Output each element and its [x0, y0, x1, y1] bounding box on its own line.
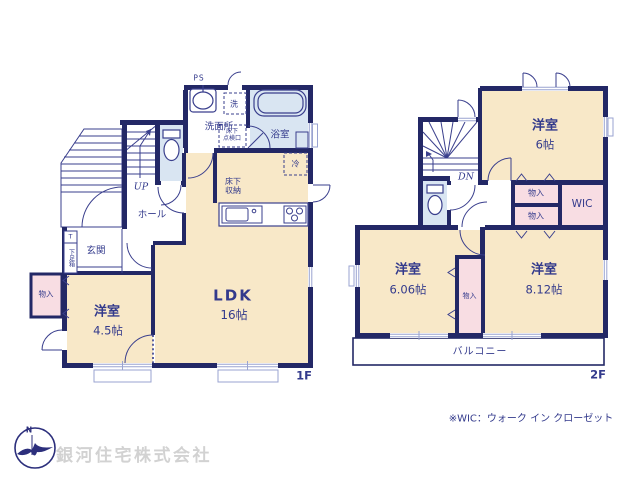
bird-icon	[17, 443, 53, 456]
wic-label: WIC	[572, 198, 593, 210]
floor1-label: 1F	[296, 369, 312, 382]
bedroom45-label: 洋室	[94, 306, 120, 321]
toilet-tank-2f	[427, 185, 443, 193]
shoe-box-label: 下足箱	[68, 249, 74, 267]
hall-label: ホール	[138, 211, 167, 222]
shoe-t-label: T	[69, 233, 73, 240]
up-label: UP	[134, 183, 148, 194]
closet-upper-label: 物入	[528, 188, 544, 197]
company-name: 銀河住宅株式会社	[56, 447, 212, 467]
toilet-tank-1f	[163, 130, 180, 138]
toilet-bowl-1f	[164, 140, 179, 161]
underfloor-hatch-label: 床下 点検口	[223, 129, 241, 143]
toilet-bowl-2f	[428, 196, 442, 215]
closet-1f-label: 物入	[39, 291, 54, 300]
kitchen-back-door	[313, 185, 330, 202]
logo-n-label: N	[26, 427, 32, 436]
bedroom606-label: 洋室	[395, 264, 421, 279]
wic-note: ※WIC：ウォーク イン クローゼット	[449, 413, 614, 425]
bedroom45-size: 4.5帖	[93, 324, 123, 337]
toilet-2f-door	[450, 185, 475, 210]
entrance-label: 玄関	[86, 247, 105, 258]
fridge-label: 冷	[292, 159, 300, 168]
toilet-1f-door	[161, 185, 181, 205]
floor2-label: 2F	[590, 368, 606, 381]
hall-genkan-door	[127, 243, 152, 268]
bedroom6-size: 6帖	[536, 138, 555, 151]
bedroom606-size: 6.06帖	[389, 283, 426, 296]
bedroom6-label: 洋室	[532, 120, 558, 135]
ldk-size: 16帖	[220, 309, 247, 323]
underfloor-storage-label: 床下 収納	[225, 177, 241, 195]
corridor-door	[462, 202, 487, 227]
stairs-2f	[423, 122, 478, 176]
company-logo	[15, 428, 55, 468]
washer-label: 洗	[230, 99, 238, 108]
closet-lower-label: 物入	[528, 211, 544, 220]
balcony-label: バルコニー	[453, 346, 508, 358]
room-ldk	[186, 152, 308, 363]
bathroom-label: 浴室	[270, 131, 289, 142]
room-ldk-lower	[155, 245, 188, 363]
closet-center-label: 物入	[463, 292, 477, 300]
ldk-label: LDK	[213, 287, 253, 304]
dn-label: DN	[458, 173, 474, 184]
floorplan-page: { "floor1": { "label": "1F", "ldk": "LDK…	[0, 0, 640, 480]
ps-label: PS	[193, 75, 204, 84]
bedroom812-label: 洋室	[531, 264, 557, 279]
bedroom812-size: 8.12帖	[525, 283, 562, 296]
floorplan-canvas	[0, 0, 640, 480]
